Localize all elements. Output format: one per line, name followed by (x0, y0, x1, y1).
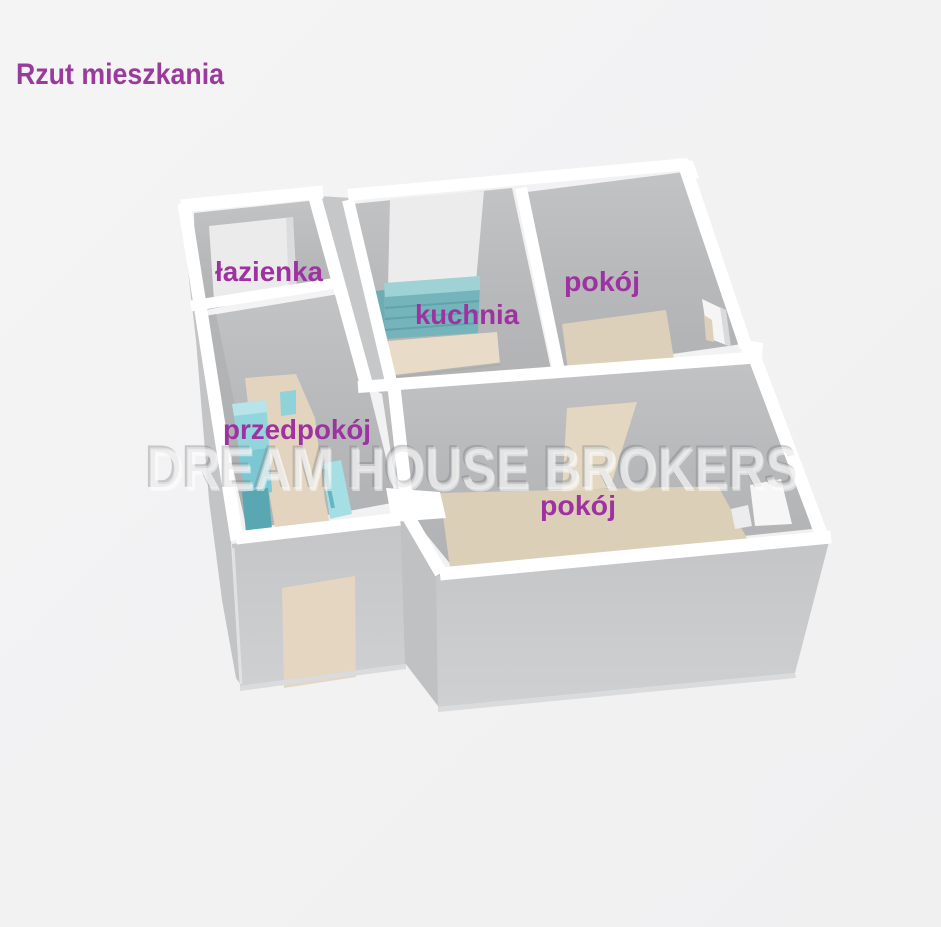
svg-text:pokój: pokój (540, 490, 616, 521)
svg-text:łazienka: łazienka (215, 256, 323, 287)
svg-text:Rzut mieszkania: Rzut mieszkania (16, 58, 224, 91)
svg-text:DREAM HOUSE BROKERS: DREAM HOUSE BROKERS (147, 435, 800, 502)
svg-text:pokój: pokój (564, 266, 640, 297)
svg-text:kuchnia: kuchnia (415, 299, 519, 330)
svg-text:przedpokój: przedpokój (223, 414, 371, 445)
